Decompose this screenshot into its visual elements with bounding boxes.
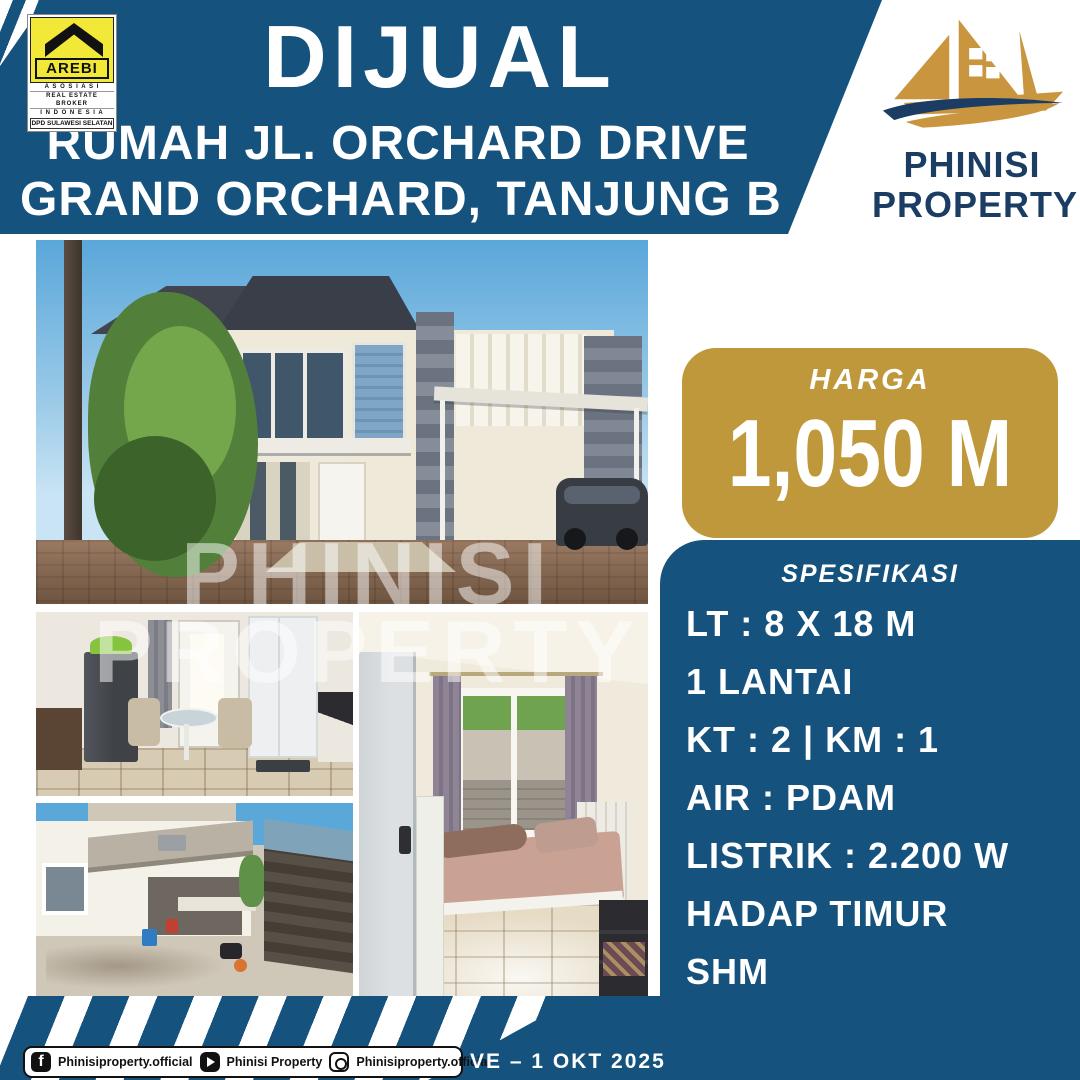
side-window [42, 863, 88, 915]
spec-item-floors: 1 LANTAI [686, 661, 1080, 703]
subtitle-line-2: GRAND ORCHARD, TANJUNG B [20, 172, 776, 227]
arebi-logo-emblem: AREBI [30, 17, 114, 83]
roof-icon [45, 23, 103, 57]
chair [218, 698, 252, 748]
spec-item-land: LT : 8 X 18 M [686, 603, 1080, 645]
youtube-handle: Phinisi Property [227, 1055, 323, 1069]
spec-item-rooms: KT : 2 | KM : 1 [686, 719, 1080, 761]
price-label: HARGA [682, 364, 1058, 397]
ac-unit [158, 835, 186, 851]
arebi-logo-word: AREBI [35, 58, 109, 79]
flyer-canvas: DIJUAL RUMAH JL. ORCHARD DRIVE GRAND ORC… [0, 0, 1080, 1080]
chair [128, 698, 160, 746]
price-value: 1,050 M [716, 399, 1024, 509]
arebi-logo-line2: REAL ESTATE BROKER [30, 92, 114, 109]
facebook-handle: Phinisiproperty.official [58, 1055, 193, 1069]
foliage [239, 855, 265, 907]
phinisi-logo: PHINISI PROPERTY [872, 12, 1072, 225]
table-leg [184, 724, 189, 760]
social-bar: f Phinisiproperty.official Phinisi Prope… [23, 1046, 463, 1078]
spec-item-certificate: SHM [686, 951, 1080, 993]
facebook-icon: f [31, 1052, 51, 1072]
stone-fence [264, 841, 353, 974]
side-table [36, 708, 82, 770]
price-box: HARGA 1,050 M [682, 348, 1058, 538]
listing-date-code: VE – 1 OKT 2025 [470, 1050, 666, 1074]
watermark-line2: PROPERTY [18, 612, 718, 692]
laundry-rack [318, 692, 353, 762]
arebi-logo-line1: A S O S I A S I [30, 83, 114, 92]
phinisi-logo-line1: PHINISI [872, 145, 1072, 185]
specs-heading: SPESIFIKASI [660, 560, 1080, 589]
spec-item-power: LISTRIK : 2.200 W [686, 835, 1080, 877]
round-table [160, 708, 218, 728]
cabinet [416, 796, 444, 996]
car-window [564, 486, 640, 504]
stone-column [416, 312, 454, 548]
doormat [256, 760, 310, 772]
window-mullion [511, 696, 517, 830]
specs-panel: SPESIFIKASI LT : 8 X 18 M 1 LANTAI KT : … [660, 540, 1080, 1080]
door-panel [359, 652, 416, 996]
spec-item-facing: HADAP TIMUR [686, 893, 1080, 935]
spec-item-water: AIR : PDAM [686, 777, 1080, 819]
red-bucket [166, 919, 178, 933]
ground-stain [46, 943, 226, 989]
arebi-logo: AREBI A S O S I A S I REAL ESTATE BROKER… [27, 14, 117, 132]
specs-list: LT : 8 X 18 M 1 LANTAI KT : 2 | KM : 1 A… [686, 603, 1080, 993]
subtitle-line-1: RUMAH JL. ORCHARD DRIVE [20, 116, 776, 171]
page-title: DIJUAL [160, 6, 720, 108]
door-handle [399, 826, 411, 854]
youtube-icon [200, 1052, 220, 1072]
blue-shutter [352, 342, 406, 452]
arebi-logo-line3: I N D O N E S I A [30, 109, 114, 117]
phinisi-logo-line2: PROPERTY [872, 185, 1072, 225]
arebi-logo-region: DPD SULAWESI SELATAN [30, 118, 114, 129]
photo-backyard [36, 803, 353, 996]
instagram-icon [329, 1052, 349, 1072]
orange-ball [234, 959, 247, 972]
ship-logo-icon [877, 12, 1067, 140]
center-roof [201, 276, 436, 334]
right-unit-battens [456, 334, 586, 426]
patterned-blanket [603, 942, 645, 976]
